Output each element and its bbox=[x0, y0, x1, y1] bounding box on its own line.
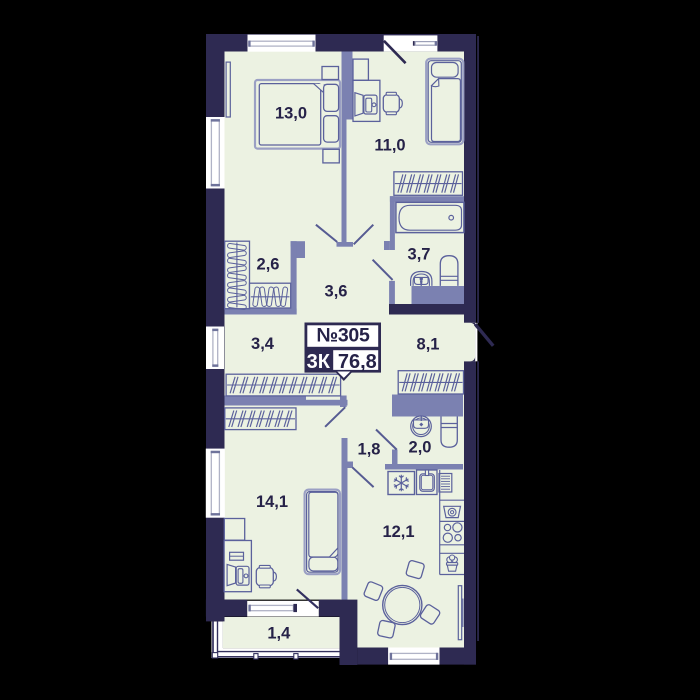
svg-text:76,8: 76,8 bbox=[338, 351, 377, 373]
svg-text:2,0: 2,0 bbox=[409, 439, 432, 457]
svg-text:14,1: 14,1 bbox=[256, 493, 288, 511]
svg-text:№305: №305 bbox=[316, 325, 370, 347]
svg-text:3,6: 3,6 bbox=[325, 283, 348, 301]
svg-text:3,7: 3,7 bbox=[408, 246, 431, 264]
svg-text:2,6: 2,6 bbox=[257, 255, 280, 273]
svg-text:1,8: 1,8 bbox=[358, 441, 381, 459]
svg-text:11,0: 11,0 bbox=[374, 137, 405, 155]
svg-text:8,1: 8,1 bbox=[417, 335, 440, 353]
svg-text:1,4: 1,4 bbox=[267, 624, 291, 642]
svg-text:13,0: 13,0 bbox=[275, 105, 307, 123]
svg-text:12,1: 12,1 bbox=[382, 523, 414, 541]
svg-text:3К: 3К bbox=[307, 351, 331, 373]
svg-text:3,4: 3,4 bbox=[251, 335, 275, 353]
